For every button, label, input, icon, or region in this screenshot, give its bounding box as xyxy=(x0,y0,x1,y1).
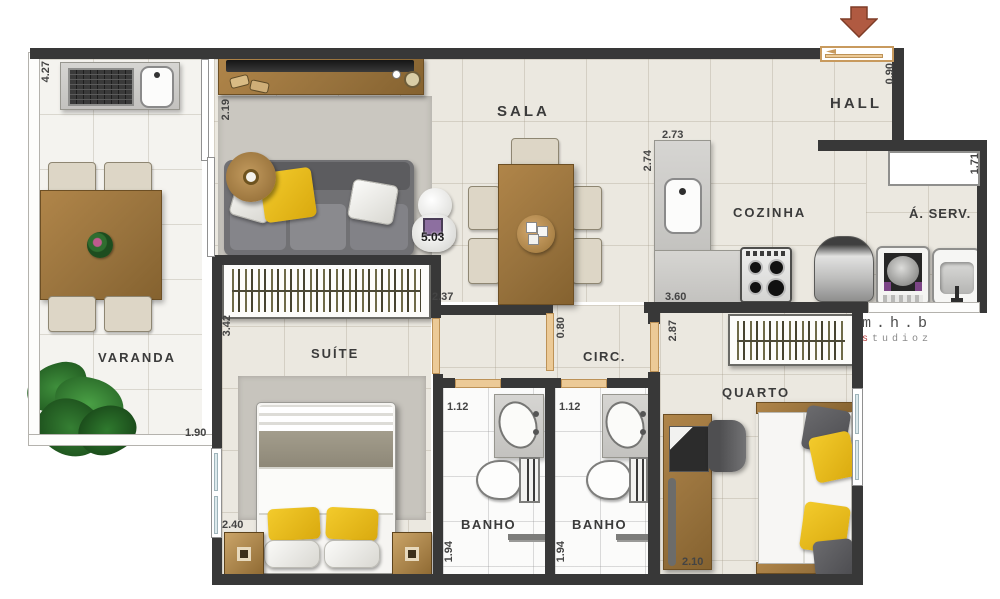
grill-icon xyxy=(68,68,134,106)
dim-varanda-height: 4.27 xyxy=(41,61,52,82)
sofa-pillow-white xyxy=(347,178,399,225)
varanda-chair xyxy=(104,296,152,332)
banho1-sink-counter xyxy=(494,394,544,458)
dining-chair xyxy=(468,238,500,284)
banho1-left-wall xyxy=(433,374,443,574)
dim-quarto-door: 2.87 xyxy=(668,320,679,341)
circ-door xyxy=(546,313,554,371)
tv-icon xyxy=(226,60,414,72)
quarto-closet xyxy=(728,314,854,366)
suite-pillow-white xyxy=(264,540,320,568)
dining-centerpiece-icon xyxy=(517,215,555,253)
room-label-banho1: BANHO xyxy=(461,518,516,531)
sala-area-label: 5.03 xyxy=(421,231,444,243)
room-label-varanda: VARANDA xyxy=(98,351,176,364)
varanda-sliding-door xyxy=(201,59,209,161)
banho2-toilet xyxy=(586,460,632,500)
dim-banho1-width: 1.12 xyxy=(447,402,468,413)
fridge-icon xyxy=(814,236,874,302)
dim-sala-width: 2.37 xyxy=(432,292,453,303)
table-flower-icon xyxy=(87,232,113,258)
dim-aserv-window: 1.71 xyxy=(970,153,981,174)
banho2-toilet-tank xyxy=(629,457,648,503)
dim-banho1-depth: 1.94 xyxy=(444,541,455,562)
dim-banho2-depth: 1.94 xyxy=(556,541,567,562)
circ-banho-wall-b xyxy=(501,378,561,388)
service-window xyxy=(888,151,980,186)
suite-pillow-yellow xyxy=(325,507,379,542)
quarto-door xyxy=(650,322,659,372)
quarto-soundbar-icon xyxy=(668,478,676,566)
watermark-brand: m.h.b xyxy=(862,315,932,332)
quarto-window xyxy=(852,388,863,486)
dining-chair xyxy=(572,186,602,230)
banho1-toilet-tank xyxy=(519,457,540,503)
sala-circ-wall xyxy=(431,305,553,315)
sala-area-marker: 5.03 xyxy=(412,188,456,252)
kitchen-bottom-wall xyxy=(644,302,870,313)
banho2-door xyxy=(561,379,607,388)
circ-banho-wall-c xyxy=(607,378,652,388)
dim-quarto-width: 2.10 xyxy=(682,557,703,568)
suite-window xyxy=(211,448,222,538)
quarto-chair xyxy=(708,420,746,472)
hall-service-wall xyxy=(818,140,987,151)
suite-door xyxy=(432,318,440,374)
kitchen-sink xyxy=(664,178,702,234)
top-wall xyxy=(30,48,822,59)
laundry-tank-icon xyxy=(932,248,982,306)
banho1-door xyxy=(455,379,501,388)
banho2-sink-counter xyxy=(602,394,650,458)
quarto-pillow-gray xyxy=(812,538,856,578)
entry-arrow-down-icon xyxy=(840,6,878,38)
stove-icon xyxy=(740,247,792,303)
room-label-cozinha: COZINHA xyxy=(733,206,806,219)
varanda-sink-faucet xyxy=(154,72,160,78)
varanda-left-wall xyxy=(28,52,40,446)
suite-closet xyxy=(222,262,431,319)
nightstand-knob-icon xyxy=(405,547,419,561)
banho1-toilet xyxy=(476,460,522,500)
varanda-sliding-door xyxy=(207,157,215,257)
suite-pillow-white xyxy=(324,540,380,568)
dim-banho2-width: 1.12 xyxy=(559,402,580,413)
dim-circ-door: 0.80 xyxy=(556,317,567,338)
entry-door xyxy=(825,54,883,58)
nightstand xyxy=(392,532,432,576)
washing-machine-icon xyxy=(876,246,930,306)
dim-cozinha-top: 2.73 xyxy=(662,130,683,141)
room-label-quarto: QUARTO xyxy=(722,386,790,399)
suite-pillow-yellow xyxy=(267,507,321,542)
banho1-squeegee-icon xyxy=(508,534,546,540)
room-label-aserv: Á. SERV. xyxy=(909,207,971,220)
nightstand xyxy=(224,532,264,576)
side-table-cup-icon xyxy=(243,169,259,185)
dim-sala-left: 2.19 xyxy=(221,99,232,120)
banho2-right-wall xyxy=(648,372,660,574)
dim-suite-left: 3.42 xyxy=(222,315,233,336)
dim-cozinha-width: 3.60 xyxy=(665,292,686,303)
console-decor-icon xyxy=(392,70,401,79)
dining-chair xyxy=(468,186,500,230)
service-bottom-wall xyxy=(868,302,980,313)
quarto-monitor-icon xyxy=(669,426,709,472)
quarto-left-wall-stub xyxy=(648,302,660,324)
dim-varanda-width: 1.90 xyxy=(185,428,206,439)
kitchen-sink-faucet xyxy=(679,188,686,195)
console-bowl-icon xyxy=(404,71,421,88)
room-label-sala: SALA xyxy=(497,104,550,119)
room-label-circ: CIRC. xyxy=(583,350,626,363)
circ-banho-wall-a xyxy=(433,378,455,388)
suite-closet-hangers-icon xyxy=(232,269,421,312)
bottom-wall xyxy=(212,574,863,585)
suite-top-wall xyxy=(212,255,441,265)
room-label-suite: SUÍTE xyxy=(311,347,359,360)
watermark-studio: studioz xyxy=(862,334,932,345)
room-label-hall: HALL xyxy=(830,96,882,111)
quarto-closet-hangers-icon xyxy=(737,321,845,360)
dim-suite-width: 2.40 xyxy=(222,520,243,531)
dim-cozinha-left: 2.74 xyxy=(643,150,654,171)
dining-chair xyxy=(572,238,602,284)
room-label-banho2: BANHO xyxy=(572,518,627,531)
banho-divider-wall xyxy=(545,378,555,574)
nightstand-knob-icon xyxy=(237,547,251,561)
dim-entry-door: 0.90 xyxy=(885,63,896,84)
floor-plan: 5.03 xyxy=(0,0,1000,599)
varanda-chair xyxy=(48,296,96,332)
